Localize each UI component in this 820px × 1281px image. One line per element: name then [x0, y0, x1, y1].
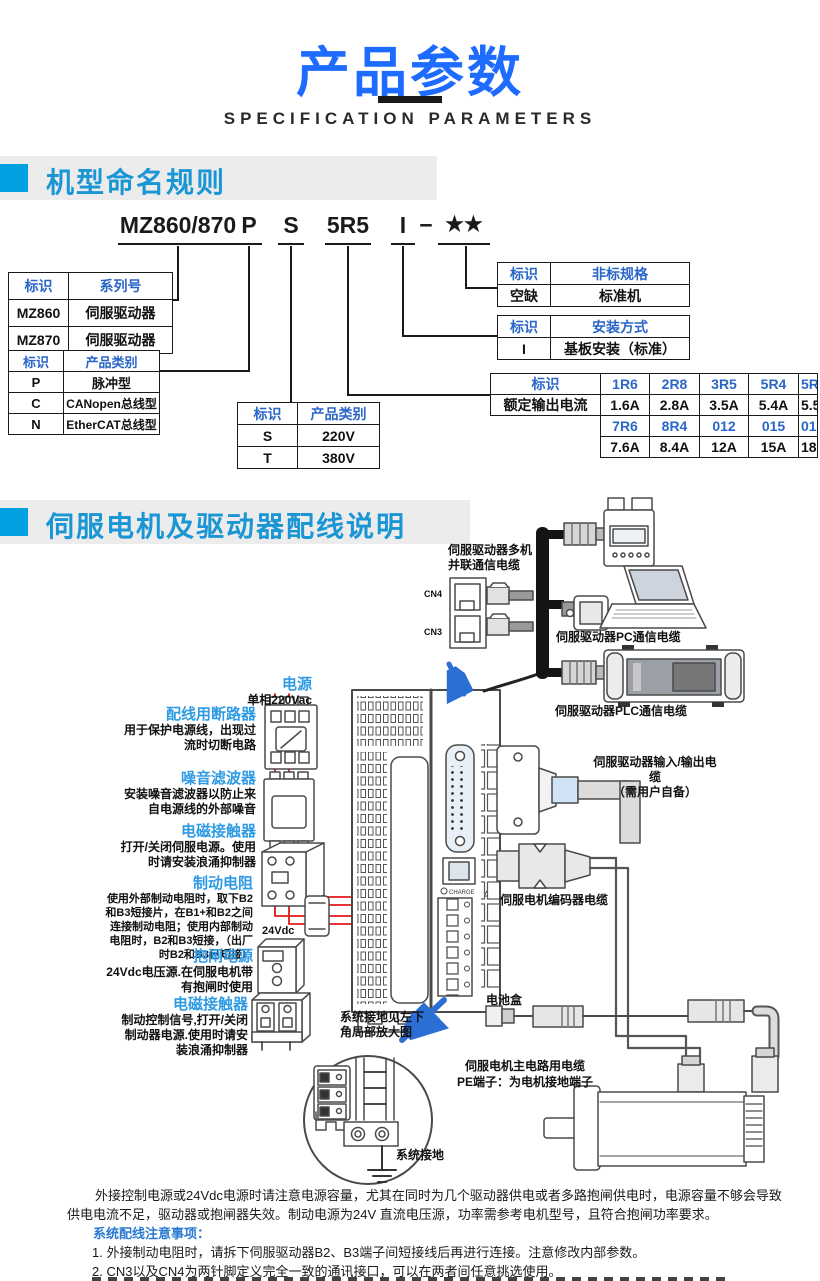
ptype-h2: 产品类别 [64, 351, 160, 372]
ptype-cell: CANopen总线型 [64, 393, 160, 414]
current-code: 3R5 [700, 374, 749, 395]
contactor2-desc: 制动控制信号,打开/关闭制动器电源.使用时请安装浪涌抑制器 [115, 1013, 248, 1058]
current-amp: 2.8A [650, 395, 700, 416]
resistor-title: 制动电阻 [105, 875, 253, 892]
nonstd-cell: 空缺 [498, 285, 551, 307]
cn-splitter-illustration [450, 578, 533, 648]
mounting-table: 标识安装方式 I基板安装（标准） [497, 315, 690, 360]
current-blank [491, 416, 601, 437]
current-amp: 5.4A [749, 395, 799, 416]
series-table: 标识系列号 MZ860伺服驱动器 MZ870伺服驱动器 [8, 272, 173, 354]
current-amp: 8.4A [650, 437, 700, 458]
model-part-series: MZ860/870 [118, 212, 238, 245]
series-h2: 系列号 [69, 273, 173, 300]
battery-label: 电池盒 [486, 991, 522, 1008]
current-amp: 18A [799, 437, 818, 458]
current-amp: 12A [700, 437, 749, 458]
current-code: 8R4 [650, 416, 700, 437]
ptype-cell: N [9, 414, 64, 435]
current-code: 1R6 [601, 374, 650, 395]
power-title: 电源 [200, 676, 312, 693]
ground-note-line1: 系统接地见左下 [340, 1010, 435, 1025]
mount-cell: 基板安装（标准） [551, 338, 690, 360]
breaker-label: 配线用断路器 用于保护电源线，出现过流时切断电路 [120, 706, 256, 753]
comm-cable [484, 674, 538, 691]
ptype-cell: EtherCAT总线型 [64, 414, 160, 435]
io-cable-label: 伺服驱动器输入/输出电缆 （需用户自备） [588, 755, 722, 800]
nonstd-h2: 非标规格 [551, 263, 690, 285]
series-cell: MZ860 [9, 300, 69, 327]
v24-label: 24Vdc [262, 925, 294, 937]
servo-drive-illustration [352, 690, 500, 1032]
ptype-cell: P [9, 372, 64, 393]
current-amp: 3.5A [700, 395, 749, 416]
ptype-h1: 标识 [9, 351, 64, 372]
product-type-table: 标识产品类别 P脉冲型 CCANopen总线型 NEtherCAT总线型 [8, 350, 160, 435]
volt-h1: 标识 [238, 403, 298, 425]
mount-h2: 安装方式 [551, 316, 690, 338]
plc-cable-label: 伺服驱动器PLC通信电缆 [555, 702, 687, 719]
ground-note-line2: 角局部放大图 [340, 1025, 435, 1040]
current-blank [491, 437, 601, 458]
model-part-voltage: S [278, 212, 304, 245]
model-part-dash: − [415, 212, 437, 242]
plc-illustration [562, 645, 744, 707]
series-h1: 标识 [9, 273, 69, 300]
multi-comm-cable-label: 伺服驱动器多机 并联通信电缆 [448, 543, 532, 573]
contactor2-label: 电磁接触器 制动控制信号,打开/关闭制动器电源.使用时请安装浪涌抑制器 [115, 996, 248, 1058]
power-label: 电源 单相220Vac [200, 676, 312, 708]
contactor1-title: 电磁接触器 [120, 823, 256, 840]
encoder-connector-illustration [497, 844, 700, 1062]
current-code: 7R6 [601, 416, 650, 437]
contactor1-desc: 打开/关闭伺服电源。使用时请安装浪涌抑制器 [120, 840, 256, 870]
ptype-cell: 脉冲型 [64, 372, 160, 393]
main-cable-label: 伺服电机主电路用电缆 PE端子：为电机接地端子 [420, 1058, 630, 1090]
rated-current-table: 标识 1R6 2R8 3R5 5R4 5R5 额定输出电流 1.6A 2.8A … [490, 373, 818, 458]
volt-cell: 380V [298, 447, 380, 469]
current-code: 2R8 [650, 374, 700, 395]
battery-chain-illustration [486, 1000, 757, 1027]
nonstd-h1: 标识 [498, 263, 551, 285]
breaker-desc: 用于保护电源线，出现过流时切断电路 [120, 723, 256, 753]
ground-note-label: 系统接地见左下 角局部放大图 [340, 1010, 435, 1040]
current-code: 5R5 [799, 374, 818, 395]
contactor1-label: 电磁接触器 打开/关闭伺服电源。使用时请安装浪涌抑制器 [120, 823, 256, 870]
cn3-label: CN3 [424, 627, 442, 637]
current-code: 012 [700, 416, 749, 437]
model-part-stars: ★★ [438, 212, 490, 245]
current-code: 018 [799, 416, 818, 437]
brake-power-label: 抱闸电源 24Vdc电压源.在伺服电机带有抱闸时使用 [105, 948, 253, 995]
multi-comm-line2: 并联通信电缆 [448, 558, 532, 573]
io-cable-line1: 伺服驱动器输入/输出电缆 [588, 755, 722, 785]
noise-filter-illustration [264, 772, 314, 848]
model-part-current: 5R5 [325, 212, 371, 245]
current-label-id: 标识 [491, 374, 601, 395]
volt-cell: S [238, 425, 298, 447]
brake-power-illustration [258, 939, 304, 993]
contactor2-title: 电磁接触器 [115, 996, 248, 1013]
cn4-label: CN4 [424, 589, 442, 599]
naming-connector-lines [160, 246, 497, 402]
volt-h2: 产品类别 [298, 403, 380, 425]
io-cable-line2: （需用户自备） [588, 785, 722, 800]
filter-desc: 安装噪音滤波器以防止来自电源线的外部噪音 [120, 787, 256, 817]
series-cell: 伺服驱动器 [69, 300, 173, 327]
volt-cell: T [238, 447, 298, 469]
multi-comm-line1: 伺服驱动器多机 [448, 543, 532, 558]
main-cable-line1: 伺服电机主电路用电缆 [420, 1058, 630, 1074]
ground-detail-illustration [304, 1056, 432, 1184]
filter-label: 噪音滤波器 安装噪音滤波器以防止来自电源线的外部噪音 [120, 770, 256, 817]
spec-page: CHARGE 产品参数 SPECIFICATION PARAMETERS 机型命… [0, 0, 820, 1281]
current-label-amp: 额定输出电流 [491, 395, 601, 416]
model-part-type: P [236, 212, 262, 245]
main-cable-line2: PE端子：为电机接地端子 [420, 1074, 630, 1090]
current-amp: 1.6A [601, 395, 650, 416]
operator-device-illustration [604, 498, 654, 566]
pc-cable-label: 伺服驱动器PC通信电缆 [556, 628, 681, 645]
current-code: 015 [749, 416, 799, 437]
mount-h1: 标识 [498, 316, 551, 338]
current-amp: 7.6A [601, 437, 650, 458]
sys-ground-label: 系统接地 [396, 1146, 444, 1163]
voltage-table: 标识产品类别 S220V T380V [237, 402, 380, 469]
contactor2-illustration [252, 993, 310, 1050]
brake-desc: 24Vdc电压源.在伺服电机带有抱闸时使用 [105, 965, 253, 995]
current-code: 5R4 [749, 374, 799, 395]
breaker-title: 配线用断路器 [120, 706, 256, 723]
charge-led-label: CHARGE [449, 890, 475, 896]
volt-cell: 220V [298, 425, 380, 447]
nonstd-cell: 标准机 [551, 285, 690, 307]
wiring-diagram-svg: CHARGE [0, 0, 820, 1281]
brake-resistor-illustration [305, 896, 329, 936]
mount-cell: I [498, 338, 551, 360]
model-part-mount: I [391, 212, 415, 245]
ptype-cell: C [9, 393, 64, 414]
current-amp: 5.5A [799, 395, 818, 416]
pc-connection-illustration [562, 566, 706, 630]
nonstandard-table: 标识非标规格 空缺标准机 [497, 262, 690, 307]
current-amp: 15A [749, 437, 799, 458]
encoder-cable-label: 伺服电机编码器电缆 [500, 891, 608, 908]
filter-title: 噪音滤波器 [120, 770, 256, 787]
brake-title: 抱闸电源 [105, 948, 253, 965]
